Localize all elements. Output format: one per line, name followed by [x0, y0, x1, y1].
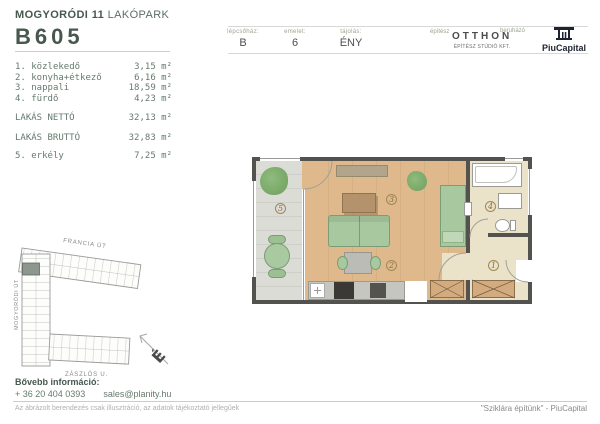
bed-pillow [442, 231, 464, 243]
meta-orientation: tájolás: ÉNY [324, 29, 378, 49]
unit-id-underline [15, 51, 170, 52]
meta-rule-bottom [228, 53, 588, 54]
room-area: 3,15 m² [134, 62, 172, 73]
company-tagline: "Sziklára építünk" - PiuCapital [387, 404, 587, 413]
window [505, 157, 523, 161]
washbasin [464, 202, 472, 216]
floorplan-datasheet: MOGYORÓDI 11 LAKÓPARK B605 lépcsőház: B … [0, 0, 600, 424]
street-label-top: FRANCIA ÚT [63, 237, 107, 250]
room-row: 2. konyha+étkező6,16 m² [15, 73, 172, 84]
gross-area-row: LAKÁS BRUTTÓ32,83 m² [15, 133, 172, 144]
footer-divider [13, 401, 587, 402]
email-address: sales@planity.hu [103, 389, 171, 399]
room-name: 2. konyha+étkező [15, 73, 102, 84]
developer-name: PiuCapital [538, 43, 590, 53]
room-name: 3. nappali [15, 83, 69, 94]
coffee-table [342, 193, 376, 213]
toilet [495, 219, 510, 232]
project-title-light: LAKÓPARK [104, 9, 169, 21]
washing-machine [498, 193, 522, 209]
phone-number: + 36 20 404 0393 [15, 389, 85, 399]
toilet-tank [510, 220, 516, 231]
meta-rule-top [228, 26, 588, 27]
dining-table [344, 252, 372, 274]
dining-chair [370, 256, 381, 270]
net-area-label: LAKÁS NETTÓ [15, 113, 75, 124]
plant [260, 167, 288, 195]
balcony-table [264, 243, 290, 269]
street-label-left: MOGYORÓDI ÚT [13, 279, 20, 330]
meta-floor-label: emelet: [272, 29, 318, 35]
site-plan: FRANCIA ÚT MOGYORÓDI ÚT ZÁSZLÓS U. É [10, 228, 195, 378]
room-number-kitchen: 2 [386, 260, 397, 271]
room-number-balcony: 5 [275, 203, 286, 214]
balcony-row: 5. erkély7,25 m² [15, 151, 172, 162]
plant [407, 171, 427, 191]
wall-niche [405, 281, 427, 302]
net-area-row: LAKÁS NETTÓ32,13 m² [15, 113, 172, 124]
sideboard [336, 165, 388, 177]
kitchen-appliance [370, 283, 386, 298]
room-name: 1. közlekedő [15, 62, 80, 73]
window [260, 157, 300, 161]
balcony-chair [268, 269, 286, 278]
room-row: 4. fürdő4,23 m² [15, 94, 172, 105]
room-area: 6,16 m² [134, 73, 172, 84]
room-area: 18,59 m² [129, 83, 172, 94]
meta-staircase-value: B [218, 37, 268, 49]
balcony-glass-wall [302, 189, 305, 300]
balcony-name: 5. erkély [15, 151, 64, 162]
piucapital-column-icon [552, 26, 576, 42]
room-name: 4. fürdő [15, 94, 58, 105]
room-row: 3. nappali18,59 m² [15, 83, 172, 94]
meta-staircase-label: lépcsőház: [218, 29, 268, 35]
bathroom-wall [488, 233, 528, 237]
floor-plan: 1 2 3 4 5 [252, 157, 532, 304]
project-title-bold: MOGYORÓDI 11 [15, 9, 104, 21]
meta-orientation-label: tájolás: [324, 29, 378, 35]
room-list: 1. közlekedő3,15 m² 2. konyha+étkező6,16… [15, 62, 172, 162]
disclaimer-text: Az ábrázolt berendezés csak illusztráció… [15, 405, 239, 412]
unit-id: B605 [15, 24, 84, 50]
developer-label: beruházó [500, 28, 525, 34]
compass-letter: É [148, 346, 169, 367]
kitchen-sink [310, 283, 325, 298]
developer-logo: PiuCapital [538, 26, 590, 53]
room-number-bathroom: 4 [485, 201, 496, 212]
wardrobe [430, 280, 464, 298]
oven [334, 282, 354, 299]
project-title: MOGYORÓDI 11 LAKÓPARK [15, 9, 169, 21]
meta-floor: emelet: 6 [272, 29, 318, 49]
meta-floor-value: 6 [272, 37, 318, 49]
site-bottom-wing [49, 334, 130, 364]
room-row: 1. közlekedő3,15 m² [15, 62, 172, 73]
wardrobe [472, 280, 515, 298]
window [252, 181, 256, 277]
dining-chair [337, 256, 348, 270]
room-number-living: 3 [386, 194, 397, 205]
balcony-door-opening [302, 161, 305, 189]
room-number-hall: 1 [488, 260, 499, 271]
bathtub-inner [475, 166, 517, 183]
north-compass-icon: É [140, 334, 169, 367]
hall-door-threshold [442, 253, 474, 280]
window [528, 169, 532, 215]
gross-area-value: 32,83 m² [129, 133, 172, 144]
more-info-label: Bővebb információ: [15, 377, 100, 387]
entrance-opening [516, 260, 532, 282]
net-area-value: 32,13 m² [129, 113, 172, 124]
meta-staircase: lépcsőház: B [218, 29, 268, 49]
balcony-area: 7,25 m² [134, 151, 172, 162]
architect-label: építész [430, 29, 449, 35]
architect-subtitle: ÉPÍTÉSZ STÚDIÓ KFT. [452, 44, 512, 50]
contact-row: + 36 20 404 0393sales@planity.hu [15, 389, 189, 399]
gross-area-label: LAKÁS BRUTTÓ [15, 133, 80, 144]
meta-orientation-value: ÉNY [324, 37, 378, 49]
site-unit-highlight [23, 263, 40, 275]
sofa [328, 215, 390, 247]
room-area: 4,23 m² [134, 94, 172, 105]
